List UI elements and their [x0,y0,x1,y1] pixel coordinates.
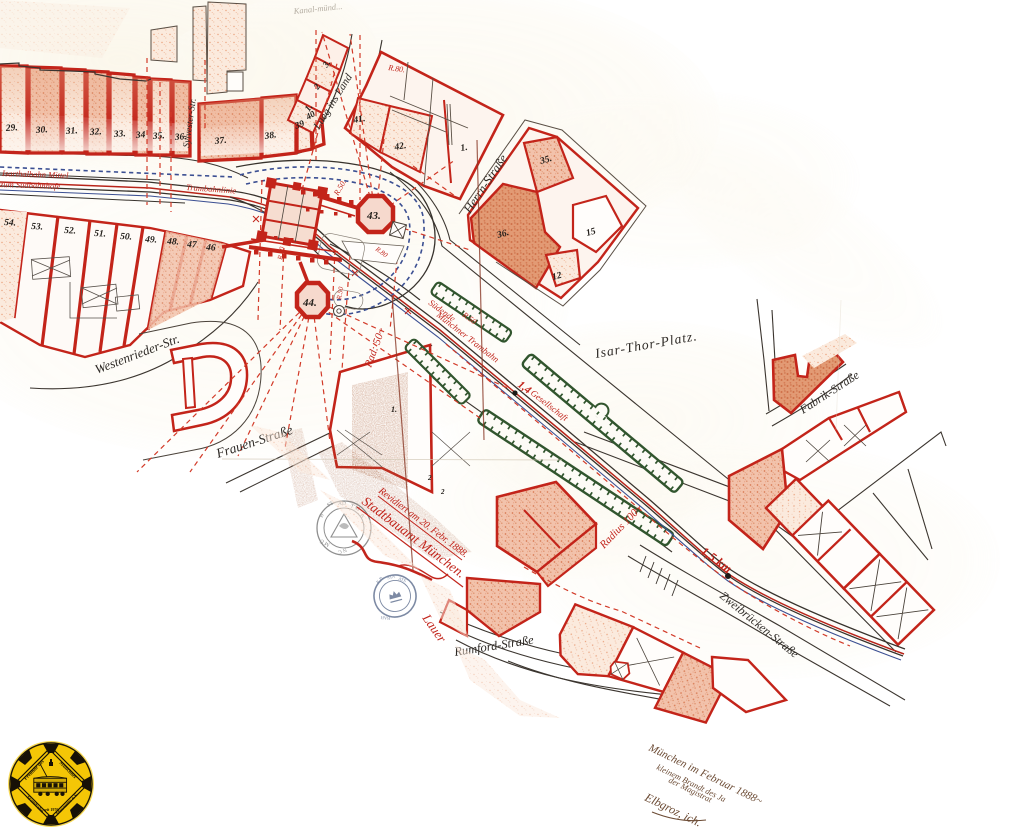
svg-text:53.: 53. [31,222,43,233]
svg-text:2: 2 [427,474,432,482]
svg-text:zum Südbahnhofe: zum Südbahnhofe [0,179,61,191]
svg-text:37.: 37. [213,136,227,147]
svg-text:51.: 51. [94,229,106,240]
svg-text:47: 47 [186,240,198,251]
svg-text:44.: 44. [302,297,317,309]
svg-text:54.: 54. [4,218,16,229]
svg-text:33.: 33. [113,129,127,140]
svg-text:34: 34 [135,130,146,141]
svg-text:50.: 50. [120,232,132,243]
svg-text:46: 46 [205,243,216,254]
svg-text:38.: 38. [263,130,277,142]
svg-text:30.: 30. [35,125,49,136]
svg-text:1.: 1. [391,405,397,414]
svg-text:49.: 49. [144,235,157,246]
svg-text:29.: 29. [5,123,19,134]
svg-text:32.: 32. [89,127,103,138]
svg-text:35.: 35. [152,131,166,142]
svg-text:2: 2 [440,488,445,496]
svg-text:43.: 43. [366,210,381,222]
svg-text:52.: 52. [64,226,76,237]
svg-text:48.: 48. [166,237,179,248]
svg-text:seit 1976: seit 1976 [44,807,59,812]
svg-text:BAH: BAH [380,615,391,621]
svg-text:31.: 31. [65,126,79,137]
svg-text:36.: 36. [174,132,188,143]
